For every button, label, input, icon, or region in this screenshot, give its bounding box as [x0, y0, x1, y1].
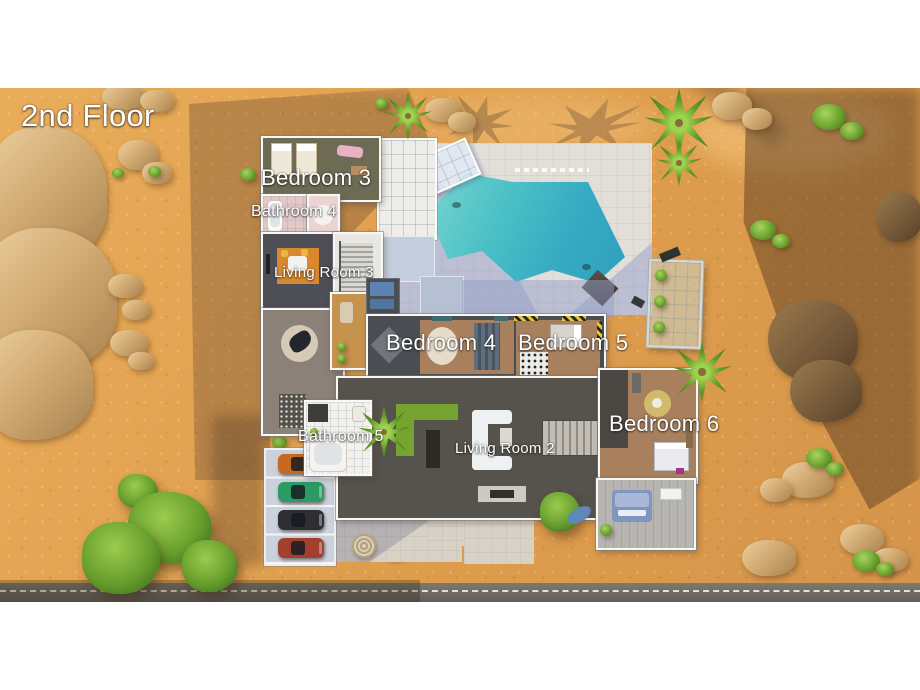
letterbox-bottom	[0, 602, 920, 690]
shaded-walk	[462, 280, 614, 318]
tv	[266, 254, 270, 274]
car-windshield	[291, 513, 305, 527]
pool-drain	[452, 202, 461, 208]
palm-trunk	[698, 368, 705, 375]
sofa-sectional	[472, 410, 512, 424]
roof-terrace	[377, 138, 437, 240]
chair	[301, 249, 308, 256]
rock-pile	[790, 360, 862, 422]
car-windshield	[291, 541, 305, 555]
deck-table	[426, 430, 440, 468]
media-console	[478, 486, 526, 502]
cliff-rock	[0, 330, 93, 440]
blue-roof-panel	[370, 282, 394, 296]
teal-wall-panel	[494, 316, 508, 321]
bush	[148, 166, 161, 177]
greenhouse-plant	[655, 269, 667, 281]
sofa-sectional	[472, 456, 512, 470]
boulder	[122, 300, 150, 320]
tree	[82, 522, 160, 594]
boulder	[742, 540, 796, 576]
room-label-bedroom5: Bedroom 5	[518, 330, 628, 356]
boulder	[108, 274, 142, 298]
lounge-chair	[340, 302, 353, 323]
dresser	[632, 373, 641, 393]
outdoor-bed	[612, 490, 652, 522]
potted-plant	[600, 524, 612, 536]
car-taillight	[319, 486, 323, 498]
palm-trunk	[676, 160, 682, 166]
teal-wall-panel	[432, 316, 452, 321]
side-table	[652, 398, 662, 408]
room-label-living-room3: Living Room 3	[274, 264, 374, 281]
room-label-bedroom6: Bedroom 6	[609, 411, 719, 437]
room-label-bedroom3: Bedroom 3	[261, 165, 371, 191]
greenhouse-plant	[653, 321, 665, 333]
boulder	[760, 478, 792, 502]
pool-drain	[582, 264, 591, 270]
car	[278, 482, 324, 502]
magenta-accent	[676, 468, 684, 474]
bush	[772, 234, 790, 248]
bed	[654, 442, 689, 471]
car-windshield	[291, 457, 305, 471]
car-taillight	[319, 514, 323, 526]
bush	[112, 168, 124, 178]
blue-roof-panel	[370, 299, 394, 309]
hazard-stripe-wall	[514, 316, 538, 321]
room-label-bathroom5: Bathroom 5	[298, 428, 384, 446]
boulder	[128, 352, 154, 370]
car-windshield	[291, 485, 305, 499]
bush	[375, 98, 388, 109]
greenhouse	[646, 259, 703, 349]
floor-title-label: 2nd Floor	[21, 98, 155, 134]
palm-trunk	[675, 119, 683, 127]
chaise	[336, 144, 363, 158]
bush	[876, 562, 894, 576]
bush	[826, 462, 844, 476]
boulder	[448, 112, 476, 132]
room-label-living-room2: Living Room 2	[455, 440, 555, 457]
boulder	[742, 108, 772, 130]
hazard-stripe-wall	[562, 316, 586, 321]
car	[278, 510, 324, 530]
palm-trunk	[405, 113, 411, 119]
console-table	[660, 488, 682, 500]
greenhouse-plant	[654, 295, 666, 307]
lounge-marker-row	[515, 168, 589, 172]
game-viewport: 2nd Floor Bedroom 3 Bathroom 4 Living Ro…	[0, 88, 920, 602]
chair	[281, 250, 288, 257]
letterbox-top	[0, 0, 920, 88]
car	[278, 538, 324, 558]
bush	[272, 436, 287, 448]
closet-dark	[308, 404, 328, 422]
room-label-bathroom4: Bathroom 4	[251, 203, 337, 221]
bush	[240, 168, 256, 181]
room-label-bedroom4: Bedroom 4	[386, 330, 496, 356]
potted-plant	[337, 354, 346, 363]
rattan-coil-rug	[352, 534, 376, 558]
outdoor-deck	[596, 478, 696, 550]
shower-mat	[279, 394, 306, 428]
car-taillight	[319, 542, 323, 554]
tree	[182, 540, 238, 592]
screenshot: 2nd Floor Bedroom 3 Bathroom 4 Living Ro…	[0, 0, 920, 690]
bush	[840, 122, 864, 140]
boulder-dark	[876, 192, 920, 242]
floorplan-world: 2nd Floor Bedroom 3 Bathroom 4 Living Ro…	[0, 88, 920, 602]
potted-plant	[337, 342, 346, 351]
